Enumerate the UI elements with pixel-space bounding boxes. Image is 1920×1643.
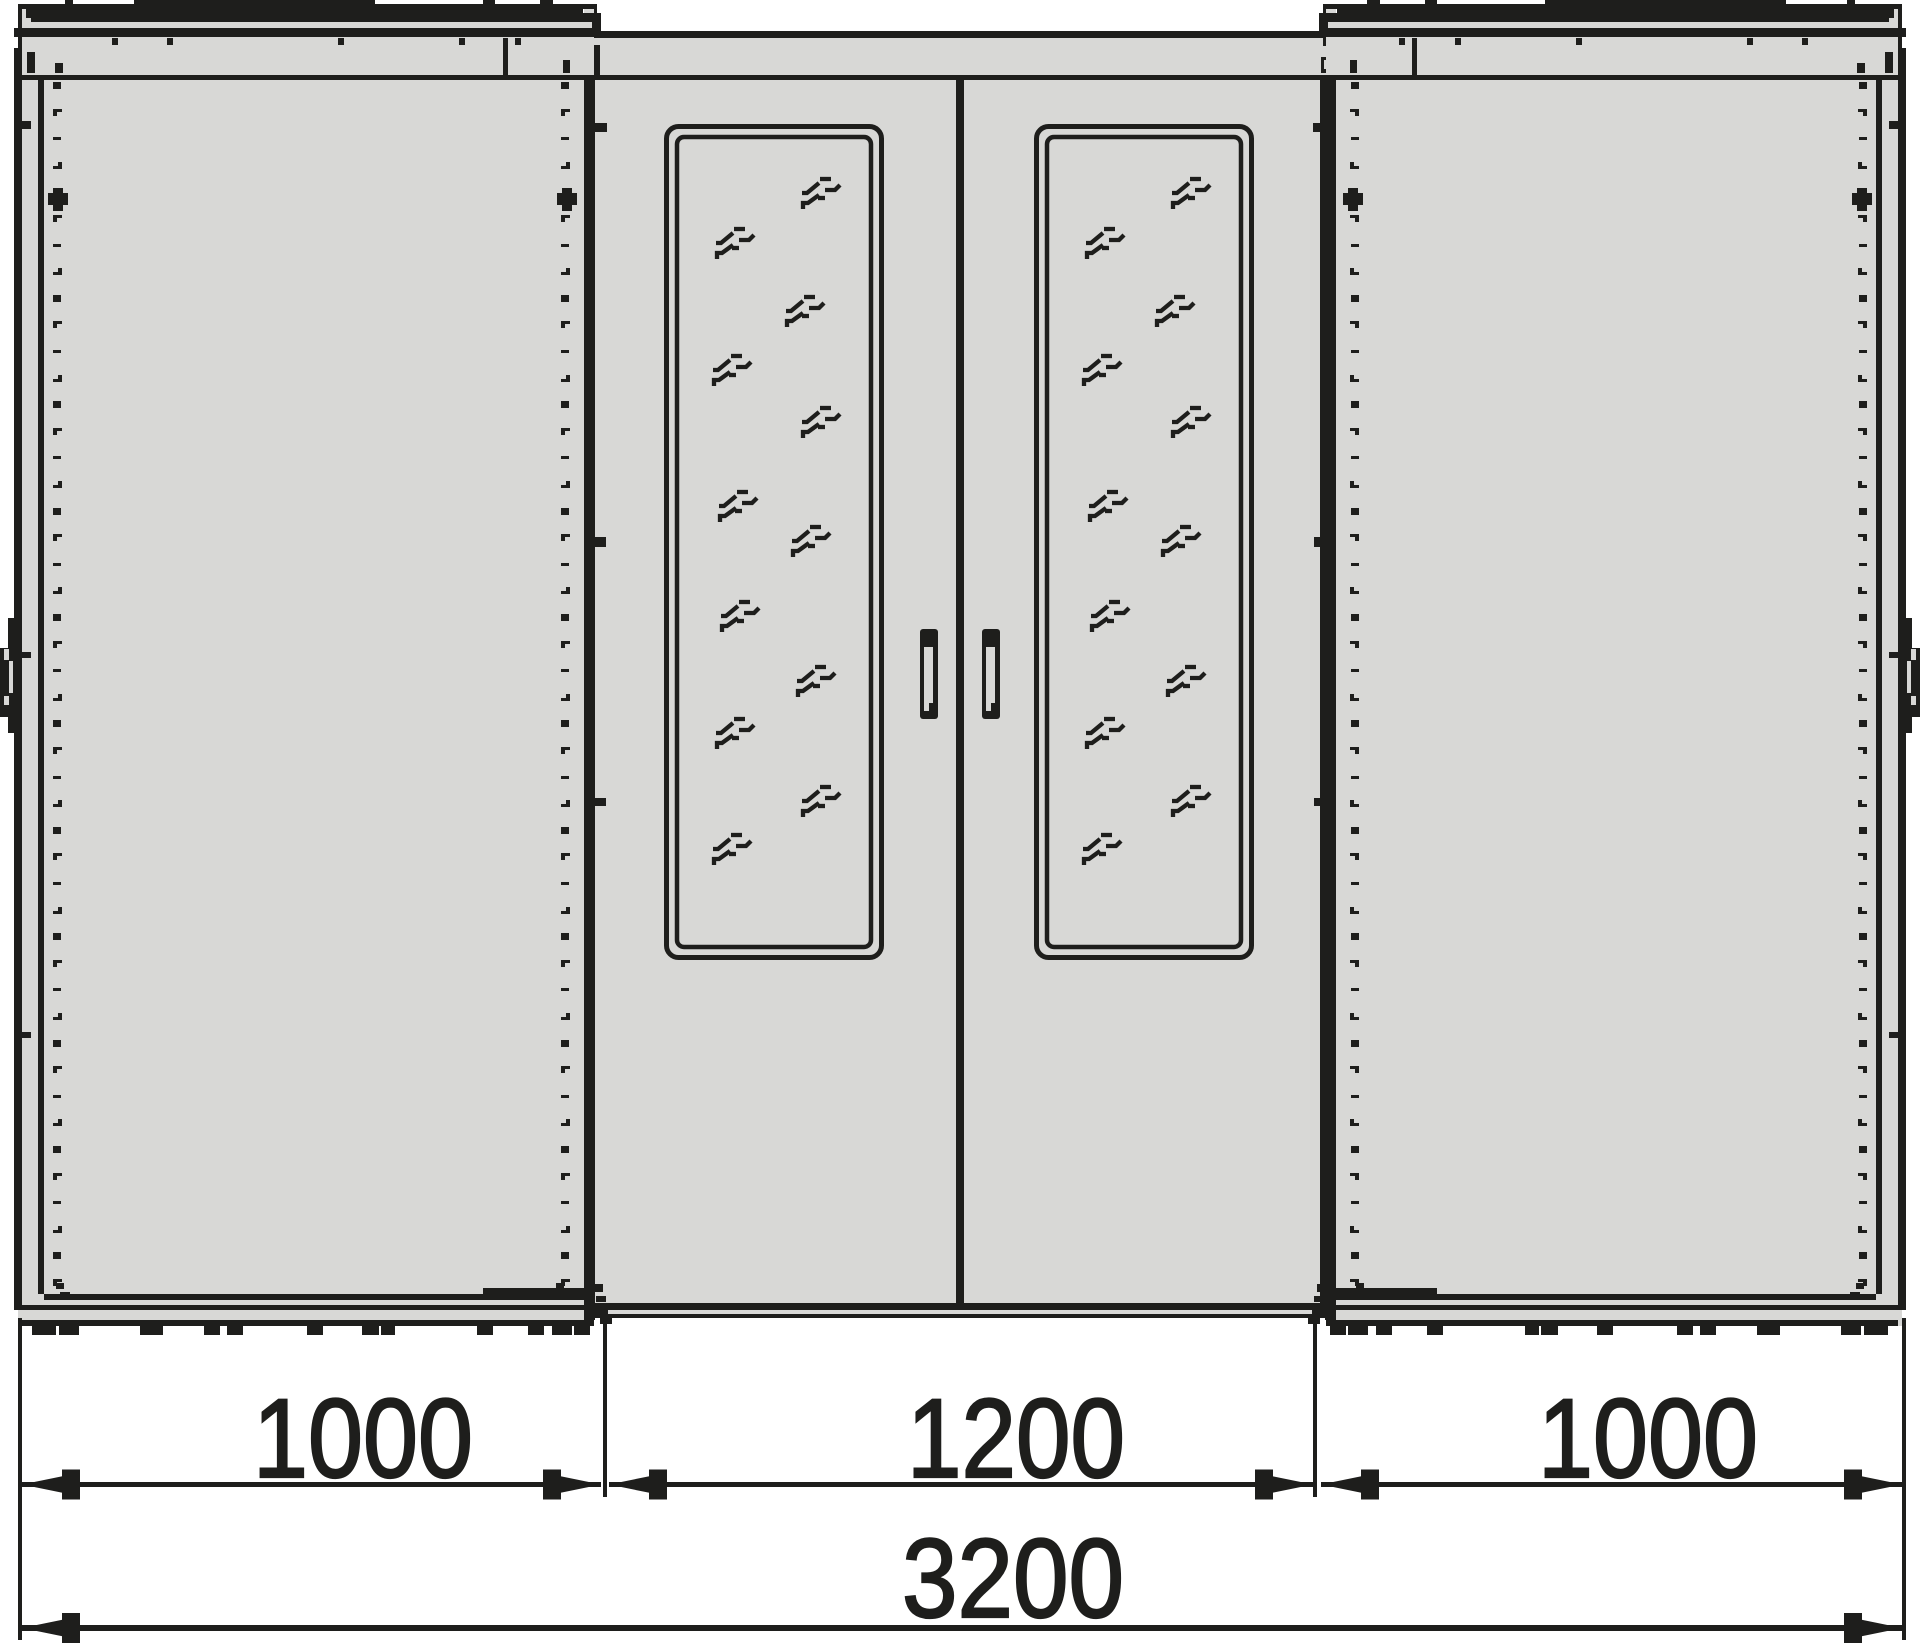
svg-text:1200: 1200 [907, 1376, 1125, 1501]
svg-text:1000: 1000 [253, 1376, 473, 1501]
svg-text:1000: 1000 [1538, 1376, 1758, 1501]
svg-text:3200: 3200 [902, 1516, 1124, 1641]
